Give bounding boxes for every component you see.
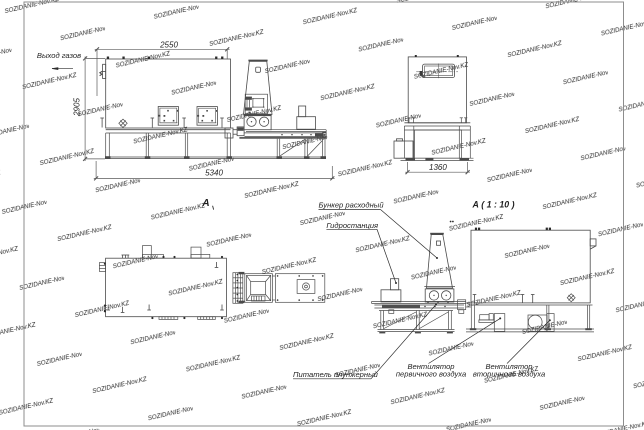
svg-text:Питатель плунжерный: Питатель плунжерный bbox=[293, 370, 379, 379]
svg-text:5340: 5340 bbox=[205, 169, 223, 178]
svg-text:первичного воздуха: первичного воздуха bbox=[396, 369, 466, 378]
svg-text:вторичного воздуха: вторичного воздуха bbox=[473, 369, 545, 378]
svg-text:Бункер расходный: Бункер расходный bbox=[319, 201, 385, 210]
svg-text:1360: 1360 bbox=[429, 163, 447, 172]
svg-text:2550: 2550 bbox=[159, 41, 178, 50]
svg-text:Выход газов: Выход газов bbox=[37, 51, 81, 60]
svg-text:2905: 2905 bbox=[73, 98, 82, 117]
svg-text:А ( 1 : 10 ): А ( 1 : 10 ) bbox=[471, 200, 514, 210]
svg-text:А: А bbox=[201, 198, 209, 209]
svg-text:Гидростанция: Гидростанция bbox=[326, 221, 378, 230]
